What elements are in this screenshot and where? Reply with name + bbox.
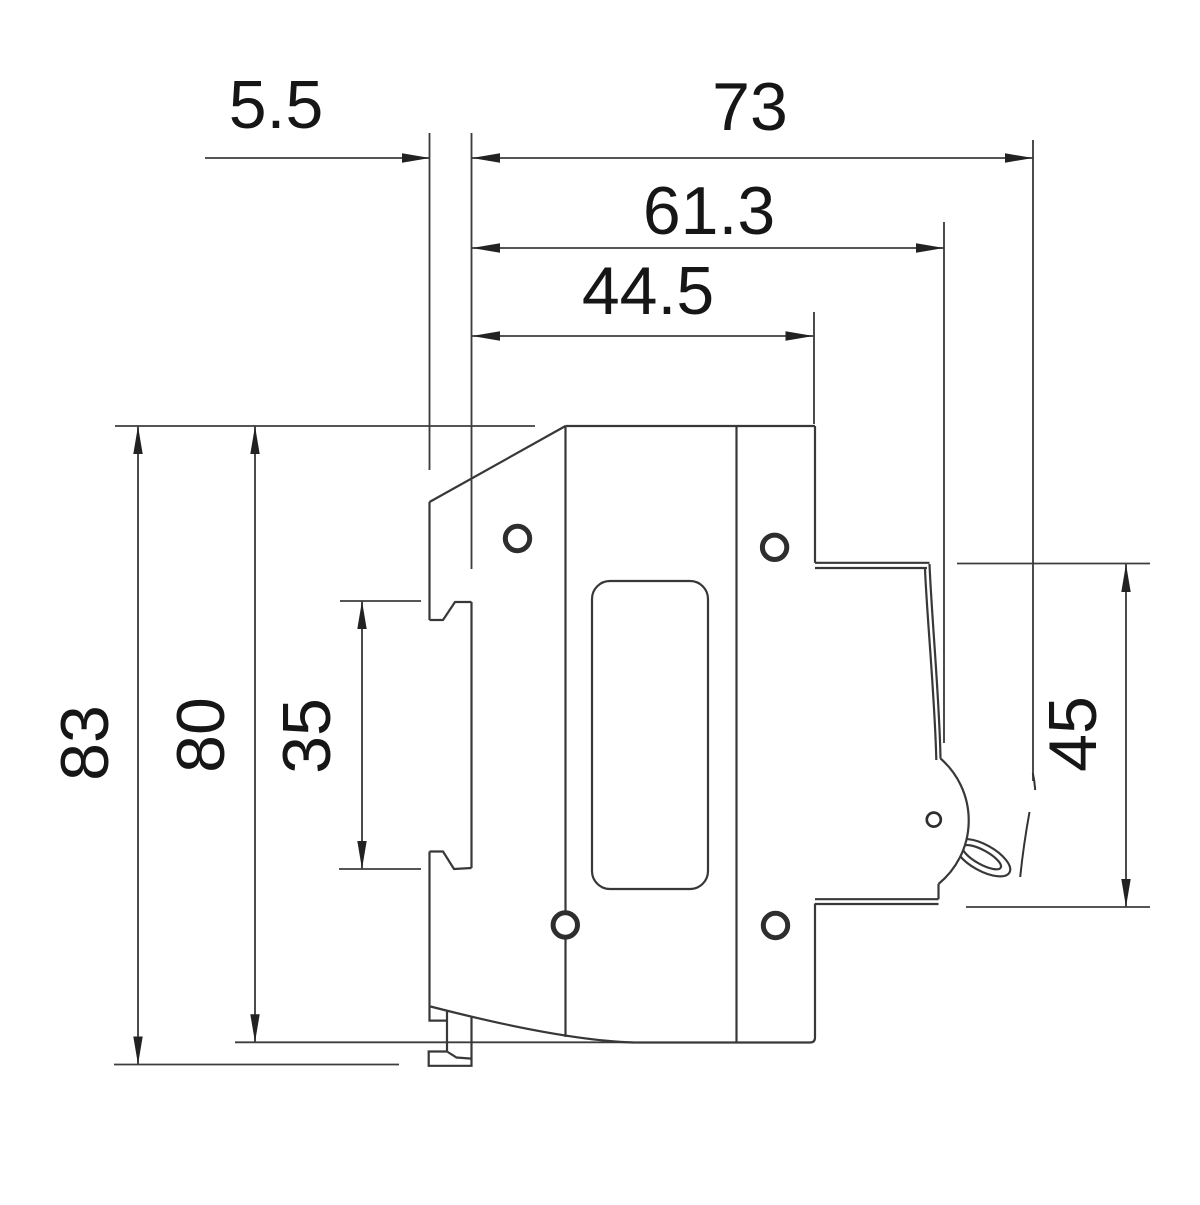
svg-text:45: 45 [1035,696,1111,772]
svg-text:61.3: 61.3 [643,173,775,249]
svg-text:5.5: 5.5 [229,67,324,143]
svg-text:80: 80 [163,697,239,773]
svg-text:44.5: 44.5 [582,253,714,329]
svg-text:35: 35 [269,698,345,774]
svg-text:73: 73 [712,69,788,145]
svg-text:83: 83 [47,705,123,781]
